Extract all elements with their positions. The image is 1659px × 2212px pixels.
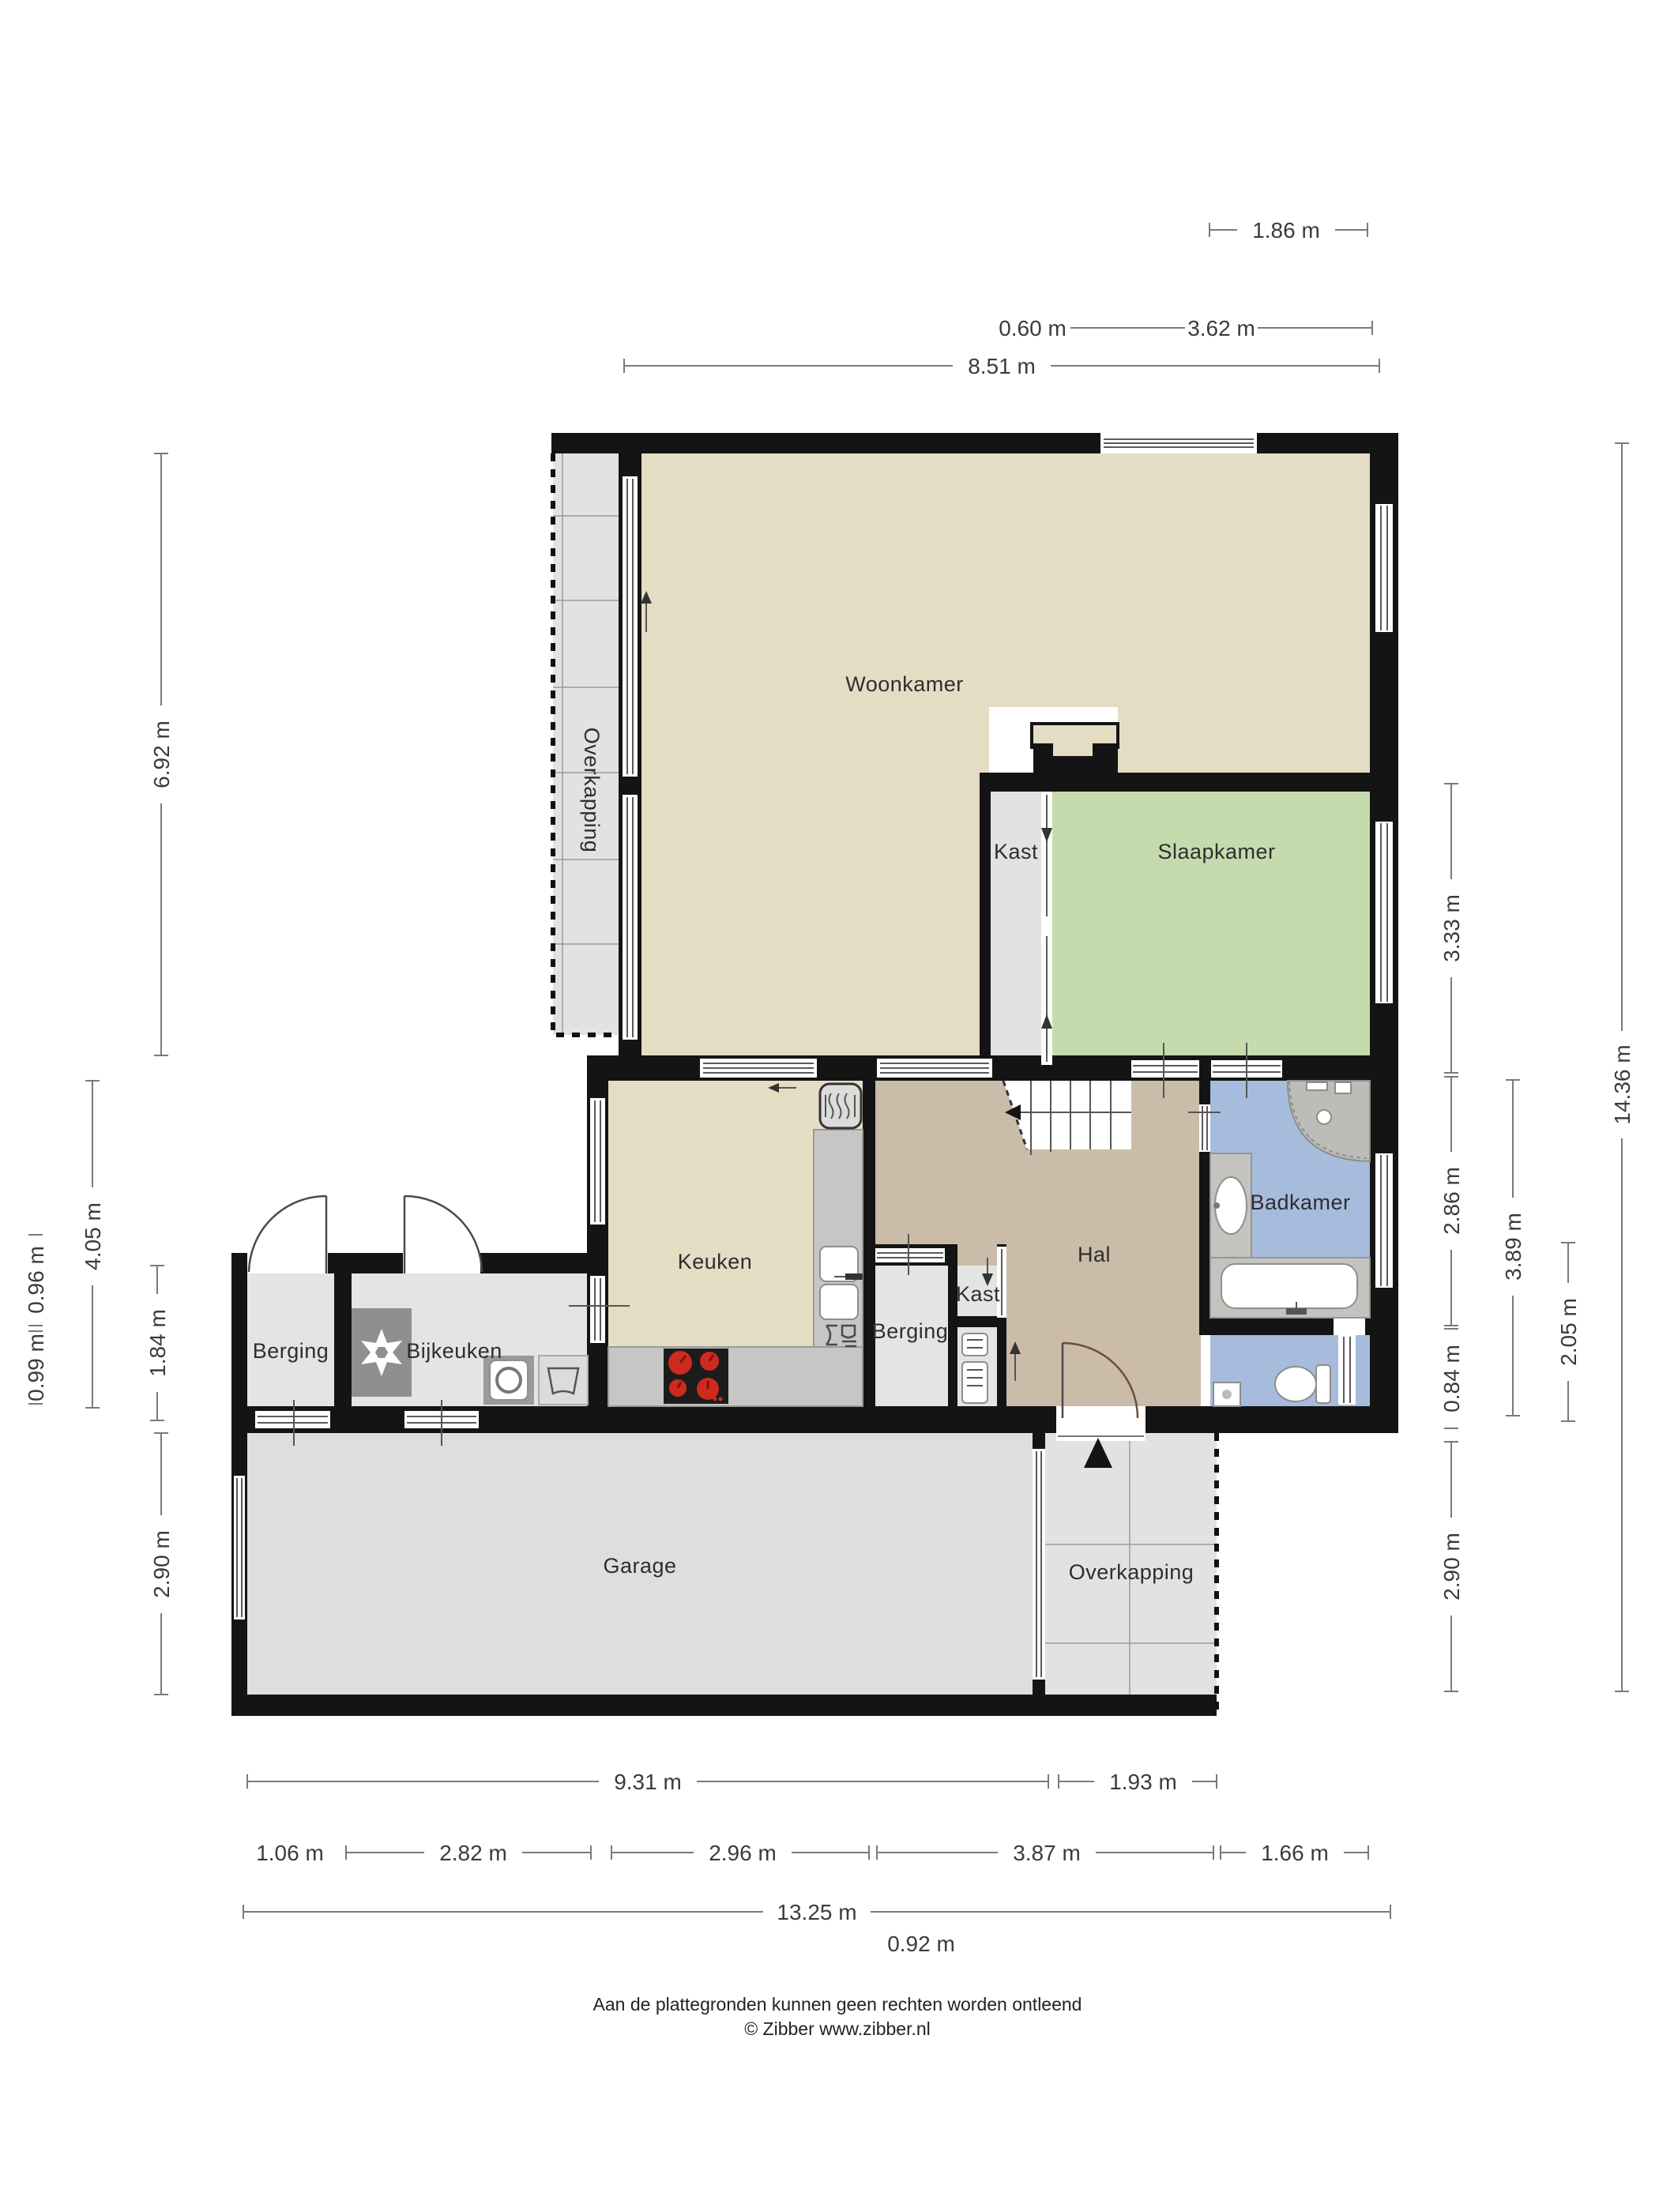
dim-389: 3.89 m xyxy=(1499,1080,1527,1416)
svg-text:2.96 m: 2.96 m xyxy=(709,1841,777,1865)
dim-692: 6.92 m xyxy=(147,453,175,1055)
cooktop-icon xyxy=(664,1349,728,1404)
svg-text:4.05 m: 4.05 m xyxy=(81,1202,105,1270)
svg-text:0.92 m: 0.92 m xyxy=(887,1932,955,1956)
woonkamer-label: Woonkamer xyxy=(845,672,964,696)
toilet-icon xyxy=(1275,1365,1330,1403)
berging-links-label: Berging xyxy=(253,1339,329,1363)
kast-midden-label: Kast xyxy=(956,1282,1000,1306)
fireplace xyxy=(989,707,1118,773)
svg-text:3.33 m: 3.33 m xyxy=(1439,894,1464,962)
window-berging-midden xyxy=(875,1248,945,1262)
kast-top-label: Kast xyxy=(994,840,1038,863)
overkapping-onder-label: Overkapping xyxy=(1069,1560,1194,1584)
svg-text:13.25 m: 13.25 m xyxy=(777,1900,856,1924)
dim-290-right: 2.90 m xyxy=(1437,1442,1465,1691)
washbasin-icon xyxy=(1210,1153,1251,1258)
svg-text:9.31 m: 9.31 m xyxy=(614,1770,682,1794)
dim-851: 8.51 m xyxy=(624,352,1379,380)
slaapkamer-floor xyxy=(1052,792,1379,1065)
dim-060-362: 0.60 m 3.62 m xyxy=(999,316,1372,340)
svg-text:8.51 m: 8.51 m xyxy=(968,354,1036,378)
window-keuken-west-2 xyxy=(590,1276,605,1343)
dim-186: 1.86 m xyxy=(1209,216,1367,244)
window-garage-overkapping xyxy=(1033,1449,1045,1680)
svg-text:0.96 m: 0.96 m xyxy=(24,1246,48,1314)
sliding-door-woonkamer-hal xyxy=(877,1059,992,1078)
dim-205: 2.05 m xyxy=(1554,1243,1582,1421)
svg-text:3.87 m: 3.87 m xyxy=(1013,1841,1081,1865)
dim-387: 3.87 m xyxy=(877,1838,1213,1867)
svg-text:1.06 m: 1.06 m xyxy=(256,1841,324,1865)
overkapping-side-label: Overkapping xyxy=(580,728,604,853)
laundry-basket-icon xyxy=(539,1356,588,1405)
dim-333: 3.33 m xyxy=(1437,784,1465,1073)
svg-text:3.62 m: 3.62 m xyxy=(1187,316,1255,340)
keuken-label: Keuken xyxy=(678,1250,753,1273)
washing-machine-icon xyxy=(483,1356,534,1405)
svg-text:3.89 m: 3.89 m xyxy=(1501,1213,1525,1281)
window-garage-west xyxy=(234,1476,245,1619)
svg-text:2.05 m: 2.05 m xyxy=(1556,1298,1581,1366)
svg-text:0.60 m: 0.60 m xyxy=(999,316,1066,340)
dim-282: 2.82 m xyxy=(346,1838,591,1867)
ventilation-fan-icon xyxy=(352,1308,412,1397)
svg-text:0.84 m: 0.84 m xyxy=(1439,1345,1464,1413)
window-berging-links-south xyxy=(255,1411,330,1428)
dim-106: 1.06 m xyxy=(241,1838,339,1867)
window-slaapkamer-east xyxy=(1375,822,1393,1003)
svg-text:0.99 m: 0.99 m xyxy=(24,1334,48,1401)
window-woonkamer-east xyxy=(1375,504,1393,632)
dim-296: 2.96 m xyxy=(611,1838,869,1867)
svg-text:6.92 m: 6.92 m xyxy=(149,720,174,788)
dim-096: 0.96 m xyxy=(24,1235,48,1326)
dim-286: 2.86 m xyxy=(1437,1077,1465,1326)
svg-text:14.36 m: 14.36 m xyxy=(1610,1044,1635,1124)
bathtub-icon xyxy=(1210,1258,1370,1318)
garage-label: Garage xyxy=(603,1554,676,1578)
hal-label: Hal xyxy=(1078,1243,1111,1266)
window-top xyxy=(1100,433,1257,453)
extractor-hood-icon xyxy=(820,1084,861,1128)
svg-text:1.66 m: 1.66 m xyxy=(1261,1841,1329,1865)
dim-099: 0.99 m xyxy=(24,1331,48,1404)
svg-text:1.93 m: 1.93 m xyxy=(1109,1770,1177,1794)
slaapkamer-label: Slaapkamer xyxy=(1157,840,1275,863)
window-slaapkamer-hal xyxy=(1131,1060,1199,1078)
window-woonkamer-west-2 xyxy=(623,795,638,1040)
dim-092: 0.92 m xyxy=(872,1929,970,1958)
dim-1325: 13.25 m xyxy=(243,1898,1390,1926)
floorplan-svg: Woonkamer Slaapkamer Kast Keuken Hal Bad… xyxy=(0,0,1659,2212)
svg-text:2.82 m: 2.82 m xyxy=(439,1841,507,1865)
window-badkamer-east xyxy=(1375,1153,1393,1288)
door-bijkeuken xyxy=(403,1196,482,1273)
door-berging-links xyxy=(247,1196,328,1273)
svg-text:2.90 m: 2.90 m xyxy=(1439,1533,1464,1601)
footer: Aan de plattegronden kunnen geen rechten… xyxy=(593,1994,1082,2039)
kast-top-door xyxy=(1041,792,1052,1065)
dim-931: 9.31 m xyxy=(247,1767,1048,1796)
dim-084: 0.84 m xyxy=(1439,1329,1464,1428)
dim-193: 1.93 m xyxy=(1059,1767,1217,1796)
sliding-door-woonkamer-keuken xyxy=(700,1059,817,1078)
badkamer-label: Badkamer xyxy=(1250,1191,1350,1214)
kitchen-counter-south xyxy=(608,1347,863,1406)
svg-text:1.84 m: 1.84 m xyxy=(145,1309,170,1377)
dim-290-left: 2.90 m xyxy=(147,1433,175,1695)
dim-184: 1.84 m xyxy=(143,1266,171,1420)
dim-405: 4.05 m xyxy=(78,1081,107,1408)
svg-text:1.86 m: 1.86 m xyxy=(1252,218,1320,243)
berging-midden-label: Berging xyxy=(872,1319,949,1343)
footer-disclaimer: Aan de plattegronden kunnen geen rechten… xyxy=(593,1994,1082,2014)
floorplan-page: Woonkamer Slaapkamer Kast Keuken Hal Bad… xyxy=(0,0,1659,2212)
toilet-sink-icon xyxy=(1213,1382,1240,1406)
window-woonkamer-west-1 xyxy=(623,476,638,777)
svg-text:2.90 m: 2.90 m xyxy=(149,1530,174,1598)
bijkeuken-label: Bijkeuken xyxy=(406,1339,502,1363)
dim-1436: 14.36 m xyxy=(1608,443,1636,1691)
dim-166: 1.66 m xyxy=(1221,1838,1368,1867)
svg-text:2.86 m: 2.86 m xyxy=(1439,1167,1464,1235)
window-keuken-west-1 xyxy=(590,1098,605,1224)
footer-copyright: © Zibber www.zibber.nl xyxy=(744,2018,931,2039)
meter-cupboard-icons xyxy=(962,1334,987,1403)
